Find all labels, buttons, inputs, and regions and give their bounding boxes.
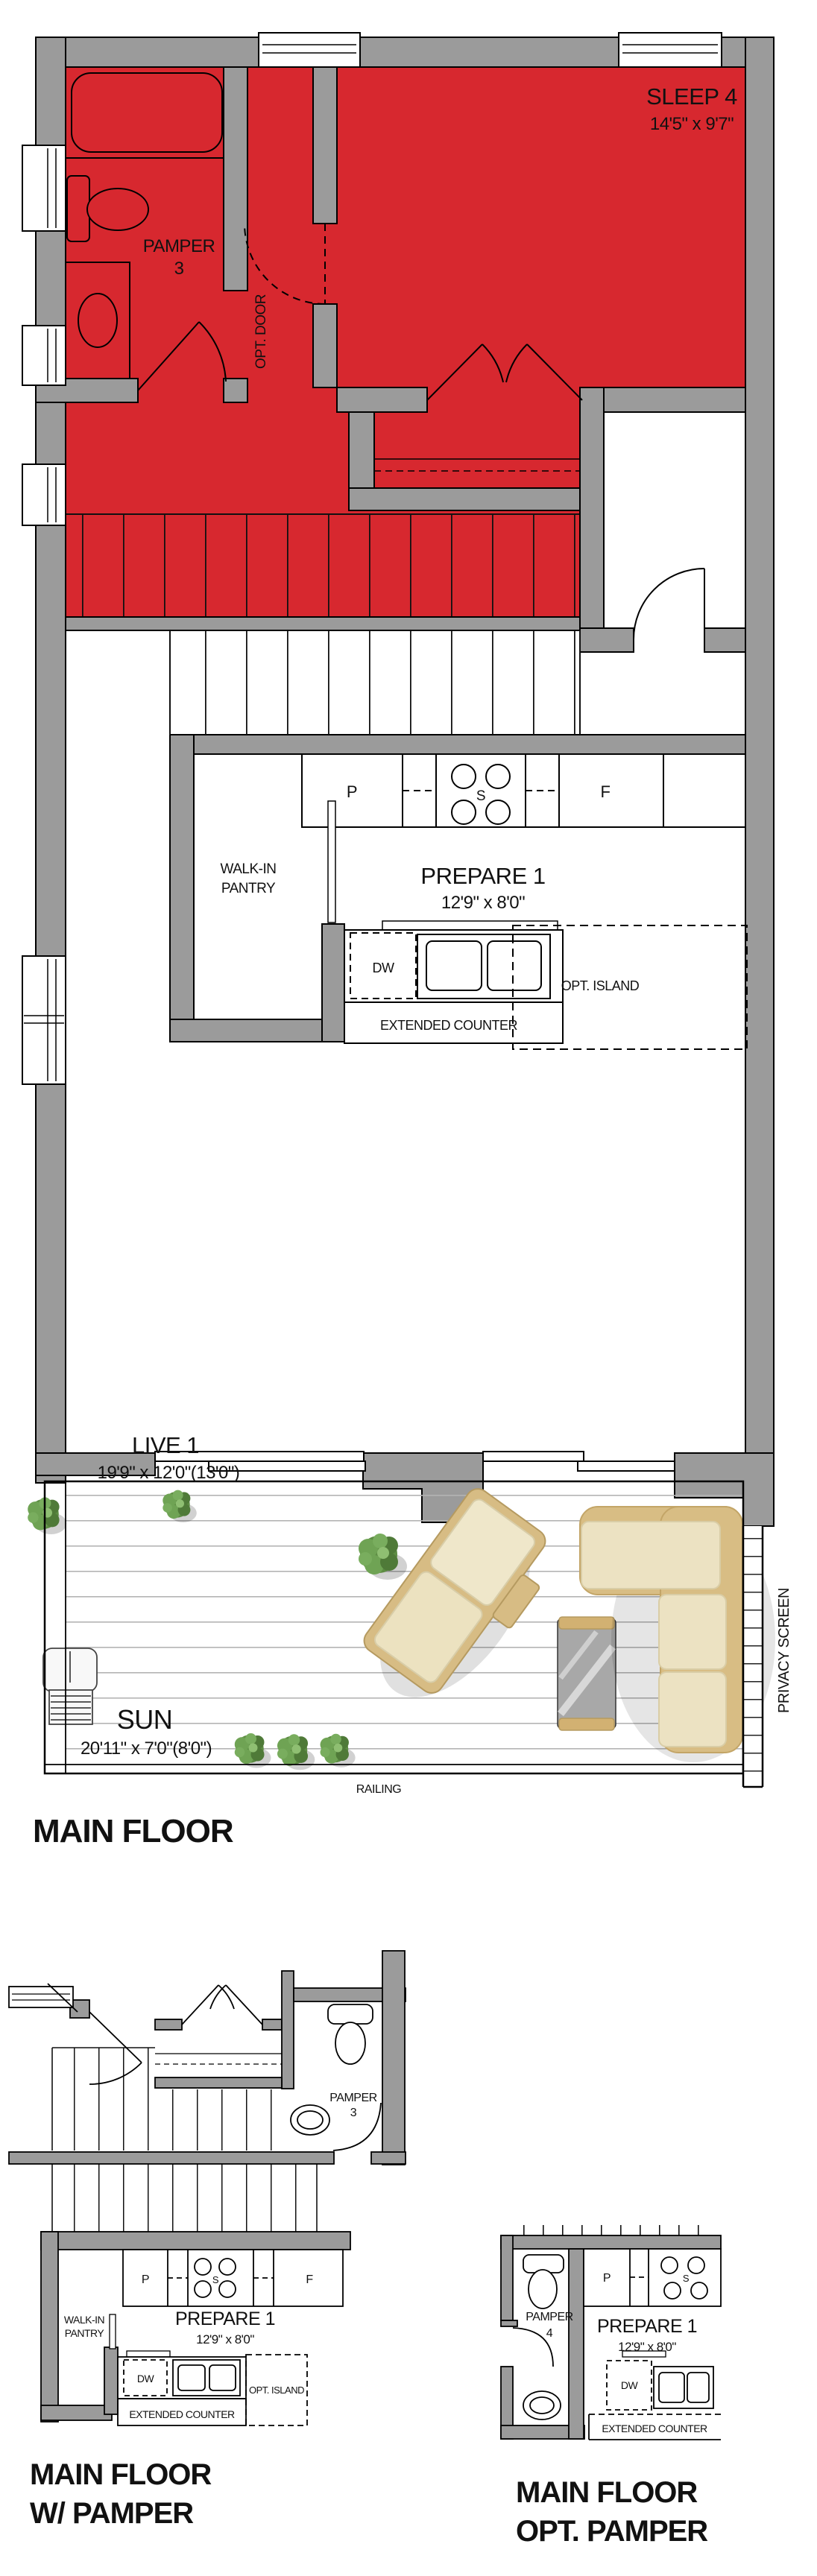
wall-left <box>36 37 66 1483</box>
wp-p-label: P <box>142 2273 149 2286</box>
room-label-prepare1: PREPARE 1 <box>420 863 545 889</box>
op-toilet-inner <box>530 2397 554 2414</box>
window-top-2 <box>619 33 722 67</box>
main-floor-title: MAIN FLOOR <box>33 1813 233 1849</box>
wp-pantry-door-slab <box>110 2314 116 2349</box>
op-s-label: S <box>683 2273 690 2284</box>
wall-pantry-left <box>170 735 194 1042</box>
wp-dw-label: DW <box>137 2373 155 2384</box>
wall-closet-bottom <box>349 488 580 510</box>
sink-basin-right <box>488 941 541 990</box>
privacy-screen-label: PRIVACY SCREEN <box>776 1588 792 1713</box>
room-label-pamper3: PAMPER <box>143 236 215 256</box>
op-cut-ticks <box>513 2225 710 2235</box>
op-sink-bowl <box>529 2270 557 2308</box>
window-left-2 <box>22 326 66 385</box>
wall-entry-bottom-left <box>580 628 634 652</box>
wp-walkin-1: WALK-IN <box>64 2314 104 2326</box>
wall-bedroom-divider-lower <box>313 304 337 387</box>
opt-island-label: OPT. ISLAND <box>561 978 640 993</box>
window-left-3 <box>22 464 66 525</box>
wp-window-fragment <box>9 1984 78 2012</box>
wall-stair-landing <box>66 617 580 630</box>
fridge-label: F <box>601 782 611 801</box>
sink-basin-left <box>426 941 482 990</box>
wp-walkin-2: PANTRY <box>65 2327 105 2339</box>
room-label-live1: LIVE 1 <box>132 1432 199 1458</box>
wall-bedroom-bottom-left <box>337 387 427 412</box>
room-dims-prepare1: 12'9" x 8'0" <box>441 893 525 913</box>
privacy-screen <box>743 1526 763 1787</box>
entry-floor <box>604 387 745 628</box>
vanity-sink <box>78 294 117 347</box>
wall-kitchen-top <box>170 735 745 754</box>
wp-s-label: S <box>212 2274 219 2285</box>
wp-f-label: F <box>306 2273 313 2286</box>
wall-bedroom-bottom-right <box>604 387 745 412</box>
pantry-door-slab <box>328 801 335 923</box>
window-left-4 <box>22 956 66 1084</box>
room-dims-sleep4: 14'5" x 9'7" <box>650 114 734 134</box>
wall-island-stub <box>322 924 344 1042</box>
wp-title-1: MAIN FLOOR <box>30 2458 212 2491</box>
coffee-table <box>558 1617 616 1730</box>
wall-bedroom-divider <box>313 67 337 224</box>
wp-prepare-label: PREPARE 1 <box>175 2308 275 2329</box>
wall-right <box>745 37 774 1458</box>
floorplan-page: SLEEP 4 14'5" x 9'7" PAMPER 3 OPT. DOOR … <box>0 0 817 2572</box>
extended-counter-label: EXTENDED COUNTER <box>380 1018 518 1033</box>
room-dims-live1: 19'9" x 12'0"(13'0") <box>98 1463 240 1483</box>
grill <box>43 1648 97 1724</box>
op-dw-label: DW <box>621 2379 639 2391</box>
wall-entry-left <box>580 387 604 652</box>
room-num-pamper3: 3 <box>174 259 184 279</box>
wall-pantry-bottom <box>170 1019 343 1042</box>
kitchen-upper-cabinets <box>302 754 745 827</box>
railing-label: RAILING <box>356 1783 402 1796</box>
op-title-1: MAIN FLOOR <box>516 2476 698 2509</box>
op-p-label: P <box>603 2272 611 2285</box>
wp-prepare-dims: 12'9" x 8'0" <box>196 2332 254 2346</box>
op-title-2: OPT. PAMPER <box>516 2515 708 2548</box>
window-top-1 <box>259 33 360 67</box>
opt-door-label: OPT. DOOR <box>253 294 269 369</box>
room-dims-sun: 20'11" x 7'0"(8'0") <box>81 1738 212 1759</box>
op-pamper-label: PAMPER <box>526 2311 572 2323</box>
dishwasher-label: DW <box>373 961 394 975</box>
toilet-tank <box>67 176 89 241</box>
wp-sink-top <box>328 2004 373 2024</box>
stairs-lower <box>170 630 580 735</box>
walkin-pantry-label-1: WALK-IN <box>221 861 277 877</box>
room-label-sun: SUN <box>117 1704 173 1735</box>
window-left-1 <box>22 145 66 231</box>
toilet-bowl <box>87 189 148 230</box>
wp-toilet-inner <box>297 2111 323 2129</box>
wall-pamper-stub <box>224 379 247 402</box>
op-prepare-label: PREPARE 1 <box>597 2316 697 2337</box>
sun-deck <box>28 1452 775 1787</box>
floorplan-drawing: SLEEP 4 14'5" x 9'7" PAMPER 3 OPT. DOOR … <box>0 0 817 2572</box>
walkin-pantry-label-2: PANTRY <box>221 881 276 896</box>
wp-extended-counter-label: EXTENDED COUNTER <box>129 2408 235 2420</box>
room-label-sleep4: SLEEP 4 <box>646 83 737 110</box>
op-extended-counter-label: EXTENDED COUNTER <box>602 2422 707 2434</box>
wp-opt-island-label: OPT. ISLAND <box>249 2384 304 2396</box>
wp-stairs <box>52 2028 317 2232</box>
pantry-cabinet-label: P <box>347 782 357 801</box>
op-prepare-dims: 12'9" x 8'0" <box>618 2340 676 2354</box>
wp-sink-bowl <box>335 2022 365 2064</box>
wp-title-2: W/ PAMPER <box>30 2497 194 2530</box>
op-pamper-num: 4 <box>546 2327 553 2340</box>
wp-pamper-label: PAMPER <box>329 2092 376 2104</box>
wp-island-lip <box>127 2351 170 2357</box>
wall-entry-bottom-right <box>704 628 745 652</box>
stove-label: S <box>476 788 485 804</box>
bathtub <box>72 73 222 152</box>
wp-pamper-num: 3 <box>350 2107 357 2119</box>
stairs-upper <box>66 514 580 618</box>
wall-pamper-right <box>224 67 247 291</box>
